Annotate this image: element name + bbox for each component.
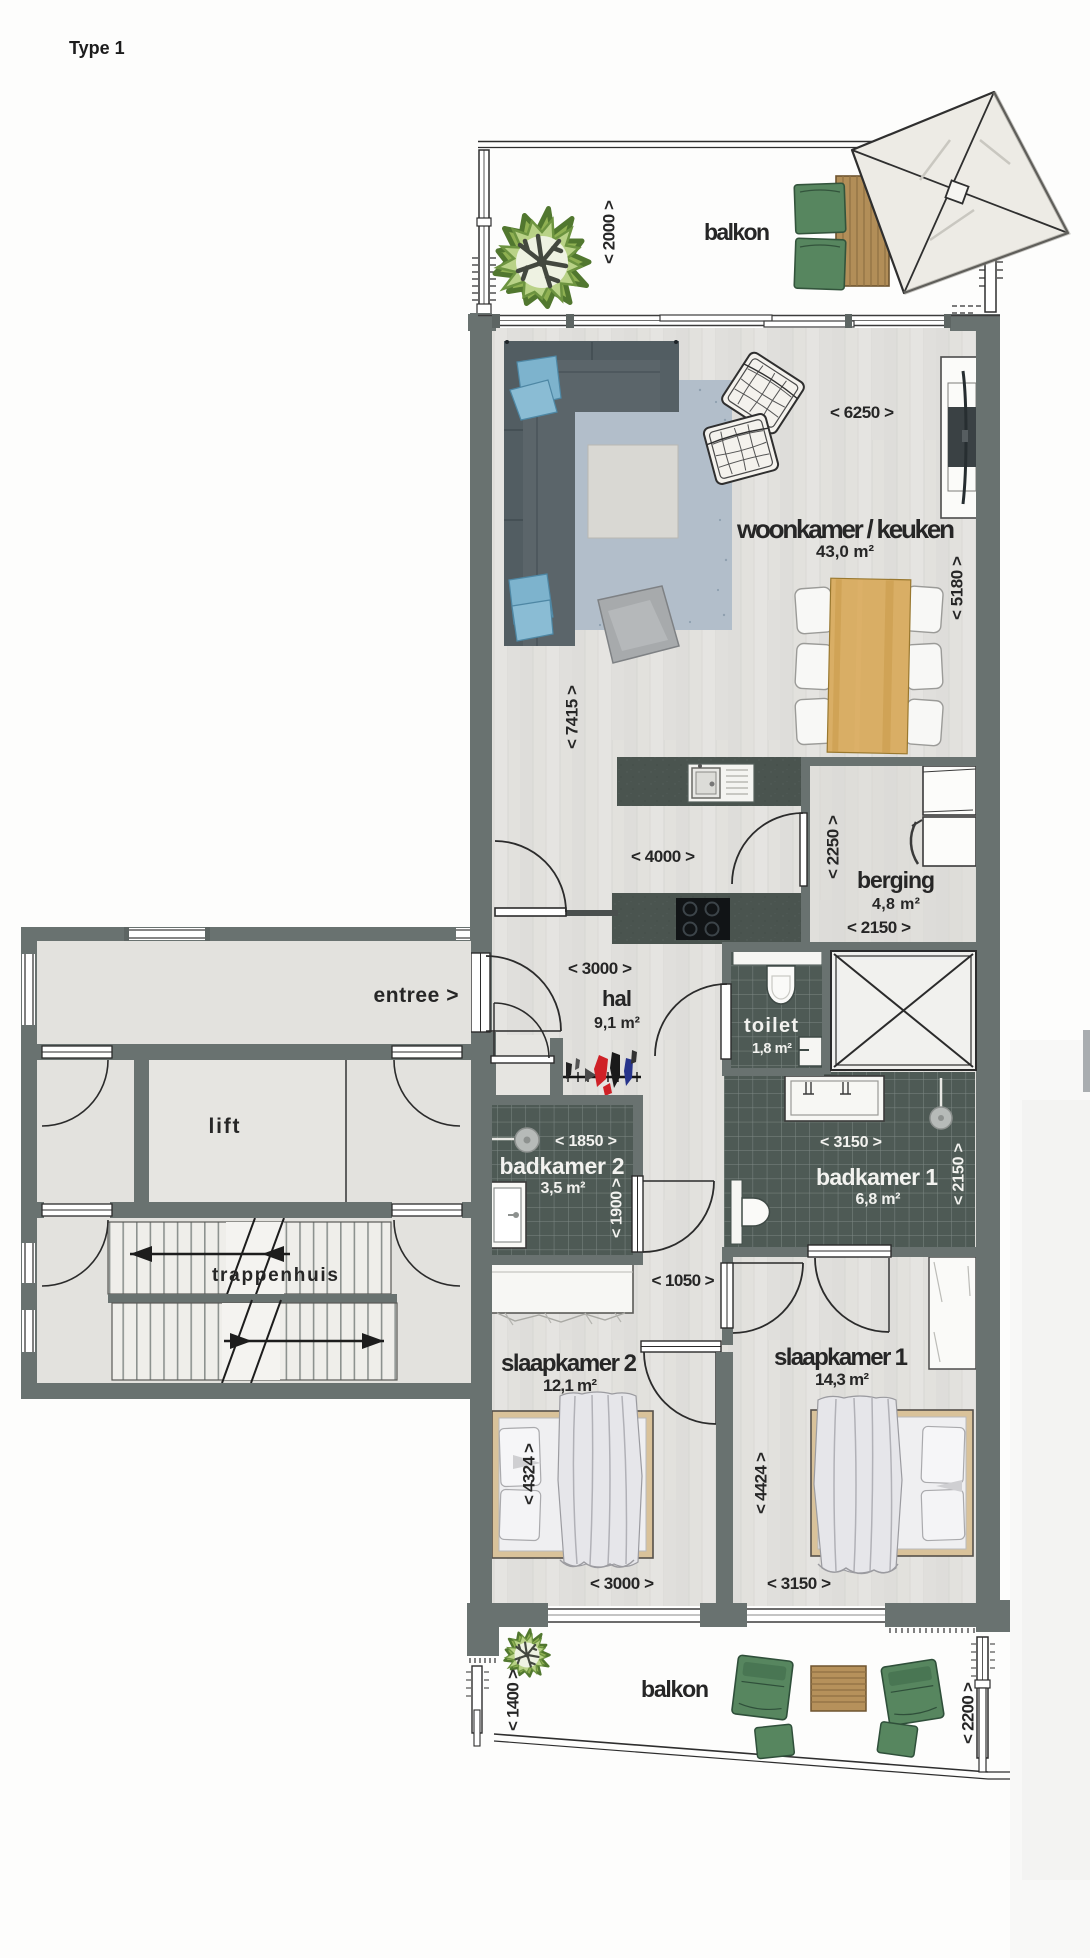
svg-text:< 1850 >: < 1850 > [555, 1133, 617, 1150]
svg-text:< 4424 >: < 4424 > [752, 1452, 771, 1514]
svg-text:< 4000 >: < 4000 > [631, 847, 695, 866]
svg-text:lift: lift [209, 1115, 240, 1138]
svg-text:< 2250 >: < 2250 > [824, 815, 843, 879]
svg-text:< 3000 >: < 3000 > [590, 1574, 654, 1593]
svg-text:< 2150 >: < 2150 > [951, 1143, 968, 1205]
svg-text:< 6250 >: < 6250 > [830, 403, 894, 422]
svg-text:< 2150 >: < 2150 > [847, 918, 911, 937]
svg-text:4,8 m²: 4,8 m² [872, 896, 920, 913]
svg-text:< 4324 >: < 4324 > [520, 1443, 539, 1505]
svg-text:43,0 m²: 43,0 m² [816, 542, 874, 561]
svg-text:1,8 m²: 1,8 m² [752, 1041, 792, 1057]
svg-text:< 3150 >: < 3150 > [820, 1134, 882, 1151]
svg-text:< 1900 >: < 1900 > [609, 1178, 626, 1238]
svg-text:slaapkamer 2: slaapkamer 2 [501, 1350, 637, 1377]
svg-text:balkon: balkon [641, 1676, 709, 1702]
svg-text:< 1400 >: < 1400 > [504, 1669, 523, 1731]
svg-text:slaapkamer 1: slaapkamer 1 [774, 1344, 908, 1371]
svg-text:< 2200 >: < 2200 > [959, 1682, 978, 1744]
svg-text:berging: berging [857, 867, 935, 893]
svg-text:< 3150 >: < 3150 > [767, 1574, 831, 1593]
svg-text:hal: hal [602, 986, 632, 1011]
svg-text:6,8 m²: 6,8 m² [856, 1191, 901, 1208]
svg-text:badkamer 1: badkamer 1 [816, 1164, 938, 1190]
svg-text:14,3 m²: 14,3 m² [815, 1370, 869, 1389]
svg-text:< 1050 >: < 1050 > [652, 1271, 715, 1290]
svg-text:< 7415 >: < 7415 > [563, 685, 582, 749]
svg-text:< 5180 >: < 5180 > [948, 556, 967, 620]
svg-text:12,1 m²: 12,1 m² [543, 1376, 597, 1395]
svg-text:badkamer 2: badkamer 2 [500, 1153, 625, 1179]
svg-text:< 3000 >: < 3000 > [568, 959, 632, 978]
svg-text:entree >: entree > [374, 984, 459, 1007]
svg-text:3,5 m²: 3,5 m² [541, 1180, 586, 1197]
svg-text:< 2000 >: < 2000 > [600, 200, 619, 264]
svg-text:Type 1: Type 1 [69, 38, 125, 58]
svg-text:9,1 m²: 9,1 m² [594, 1015, 640, 1032]
svg-text:woonkamer / keuken: woonkamer / keuken [736, 514, 955, 544]
svg-text:balkon: balkon [704, 219, 770, 245]
